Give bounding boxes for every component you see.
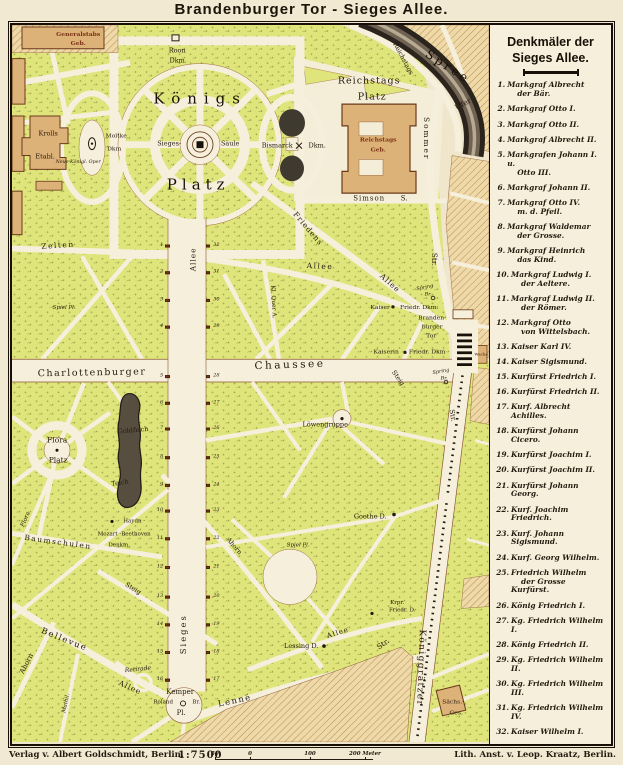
map-label: Lenné [218, 694, 253, 709]
monument-marker [206, 325, 211, 328]
monument-number: 27 [213, 401, 219, 406]
map-label: S. [401, 196, 408, 203]
monument-entry: 2.Markgraf Otto I. [496, 105, 606, 114]
monument-number: 21 [213, 565, 219, 570]
monument-entry: 28.König Friedrich II. [496, 641, 606, 650]
monument-number: 7 [160, 426, 163, 431]
map-label: Neue Königl. Oper [56, 161, 101, 166]
map-label: Sieges [180, 614, 189, 654]
map-label: Chaussee [255, 359, 326, 372]
monument-entry: 20.Kurfürst Joachim II. [496, 466, 606, 475]
monument-number: 14 [157, 622, 163, 627]
monument-marker [206, 427, 211, 430]
map-label: Br. [192, 701, 200, 706]
monument-marker [206, 402, 211, 405]
map-label: Allee [379, 273, 402, 294]
monument-number: 16 [157, 677, 163, 682]
map-label: Dkm. [169, 58, 186, 64]
monument-marker [206, 244, 211, 247]
map-label: Reichstags [360, 138, 397, 144]
map-region: GeneralstabsGeb.RoonDkm.KönigsPlatzKroll… [12, 25, 489, 742]
monument-entry: 29.Kg. Friedrich Wilhelm II. [496, 656, 606, 674]
monument-marker [206, 484, 211, 487]
monument-entry: 17.Kurf. Albrecht Achilles. [496, 403, 606, 421]
map-frame: GeneralstabsGeb.RoonDkm.KönigsPlatzKroll… [8, 21, 615, 748]
map-label: Branden- [418, 316, 446, 322]
monument-entry: 24.Kurf. Georg Wilhelm. [496, 554, 606, 563]
monument-number: 10 [157, 508, 163, 513]
legend-list: 1.Markgraf Albrechtder Bär.2.Markgraf Ot… [494, 78, 607, 738]
monument-marker [206, 623, 211, 626]
monument-number: 1 [160, 243, 163, 248]
map-label: Simson [353, 196, 385, 203]
monument-entry: 4.Markgraf Albrecht II. [496, 136, 606, 145]
map-label: Ufer [454, 97, 473, 112]
map-label: Löwengruppe [302, 422, 347, 428]
monument-number: 11 [157, 536, 163, 541]
map-label: Wache [475, 353, 488, 357]
monument-marker [165, 456, 170, 459]
monument-entry: 5.Markgrafen Johann I. u.Otto III. [496, 151, 606, 178]
map-label: Zelten [41, 241, 75, 251]
monument-marker [206, 299, 211, 302]
publisher-credit: Verlag v. Albert Goldschmidt, Berlin. [9, 750, 184, 760]
monument-entry: 8.Markgraf Waldemarder Grosse. [496, 223, 606, 241]
monument-entry: 19.Kurfürst Joachim I. [496, 451, 606, 460]
legend-panel: Denkmäler der Sieges Allee. 1.Markgraf A… [489, 25, 611, 744]
map-label: Ges. [450, 711, 463, 717]
map-label: Etabl. [35, 154, 55, 160]
monument-entry: 6.Markgraf Johann II. [496, 184, 606, 193]
monument-entry: 13.Kaiser Karl IV. [496, 343, 606, 352]
monument-marker [206, 456, 211, 459]
monument-entry: 15.Kurfürst Friedrich I. [496, 373, 606, 382]
monument-entry: 27.Kg. Friedrich Wilhelm I. [496, 617, 606, 635]
map-label: Spiel Pl. [287, 544, 310, 549]
map-label: Haydn - [123, 520, 145, 525]
monument-number: 13 [157, 594, 163, 599]
map-label: Krolls [39, 131, 58, 137]
map-label: Roon [169, 48, 186, 54]
map-label: Baumschulen [24, 534, 92, 551]
monument-marker [165, 325, 170, 328]
map-label: Roland [153, 701, 173, 706]
map-label: Spree [424, 48, 473, 85]
legend-title-line1: Denkmäler der [494, 35, 607, 51]
monument-marker [206, 566, 211, 569]
monument-entry: 3.Markgraf Otto II. [496, 121, 606, 130]
monument-marker [165, 651, 170, 654]
monument-entry: 11.Markgraf Ludwig II.der Römer. [496, 295, 606, 313]
map-label: Säule [221, 141, 239, 147]
map-label: Goldfisch [118, 426, 149, 435]
monument-marker [206, 537, 211, 540]
map-label: Tor [426, 334, 436, 340]
monument-entry: 21.Kurfürst Johann Georg. [496, 482, 606, 500]
monument-number: 15 [157, 650, 163, 655]
monument-number: 32 [213, 243, 219, 248]
map-label: Kemper [166, 689, 194, 696]
monument-number: 24 [213, 483, 219, 488]
monument-marker [165, 402, 170, 405]
map-label: Geb. [71, 41, 86, 47]
map-label: Reichstags [392, 42, 415, 76]
map-label: Dkm. [308, 143, 325, 149]
monument-entry: 26.König Friedrich I. [496, 602, 606, 611]
monument-entry: 16.Kurfürst Friedrich II. [496, 388, 606, 397]
monument-marker [165, 375, 170, 378]
monument-number: 2 [160, 270, 163, 275]
monument-number: 6 [160, 401, 163, 406]
monument-marker [206, 595, 211, 598]
legend-divider [525, 71, 577, 74]
map-label: Sommer [422, 117, 430, 160]
page-title: Brandenburger Tor - Sieges Allee. [0, 1, 623, 18]
map-label: Friedens [292, 211, 324, 247]
legend-title-line2: Sieges Allee. [494, 51, 607, 67]
map-label: Dkm [107, 147, 121, 153]
scale-tick-label: 50 [211, 751, 219, 757]
map-label: Bellevue [40, 627, 89, 653]
monument-number: 31 [213, 270, 219, 275]
map-label: Str. [376, 637, 391, 651]
map-label: Flora [47, 437, 67, 444]
monument-number: 22 [213, 536, 219, 541]
scale-tick-label: 100 [304, 751, 315, 757]
monument-marker [206, 651, 211, 654]
map-label: Moltke [106, 134, 127, 140]
monument-number: 23 [213, 508, 219, 513]
monument-number: 25 [213, 455, 219, 460]
monument-entry: 1.Markgraf Albrechtder Bär. [496, 81, 606, 99]
monument-entry: 23.Kurf. Johann Sigismund. [496, 530, 606, 548]
monument-marker [165, 566, 170, 569]
map-label: Teich [111, 479, 129, 488]
monument-number: 20 [213, 594, 219, 599]
monument-marker [165, 427, 170, 430]
monument-entry: 31.Kg. Friedrich Wilhelm IV. [496, 704, 606, 722]
map-label: Flora [20, 511, 32, 528]
map-label: Br. [441, 377, 448, 382]
monument-entry: 32.Kaiser Wilhelm I. [496, 728, 606, 737]
map-label: Allee [118, 679, 143, 696]
scale-tick-label: 200 Meter [349, 751, 381, 757]
map-label: Sächs.- [442, 700, 464, 706]
monument-marker [165, 271, 170, 274]
map-label: Allee [307, 262, 334, 271]
monument-number: 5 [160, 374, 163, 379]
monument-number: 9 [160, 483, 163, 488]
map-label: Bismarck [262, 143, 293, 149]
map-label: Str. [448, 409, 457, 422]
map-label: Ahorn [225, 537, 243, 556]
map-label: Friedr. Dkm. [400, 305, 438, 311]
monument-number: 19 [213, 622, 219, 627]
monument-entry: 18.Kurfürst Johann Cicero. [496, 427, 606, 445]
map-label: Goethe D. [354, 514, 387, 520]
monument-number: 30 [213, 298, 219, 303]
map-label: Sieges- [157, 141, 181, 147]
monument-entry: 25.Friedrich Wilhelmder Grosse Kurfürst. [496, 569, 606, 596]
map-label: Steig [391, 369, 406, 387]
map-label: Kaiserin [374, 350, 399, 356]
monument-entry: 10.Markgraf Ludwig I.der Aeltere. [496, 271, 606, 289]
map-label: Allee [326, 627, 350, 641]
monument-marker [206, 509, 211, 512]
monument-marker [165, 678, 170, 681]
monument-entry: 30.Kg. Friedrich Wilhelm III. [496, 680, 606, 698]
map-label: Retirade [125, 666, 152, 675]
map-label: Reichstags [338, 77, 401, 86]
map-label: Br. [425, 293, 432, 298]
monument-entry: 12.Markgraf Ottovon Wittelsbach. [496, 319, 606, 337]
map-label: Platz [358, 93, 387, 102]
monument-marker [165, 537, 170, 540]
map-label: Königgrätzer [414, 629, 426, 706]
monument-marker [165, 299, 170, 302]
map-label: Charlottenburger [38, 368, 147, 379]
map-label: Königs [153, 92, 247, 107]
footer: Verlag v. Albert Goldschmidt, Berlin. 1:… [0, 748, 623, 765]
monument-entry: 14.Kaiser Sigismund. [496, 358, 606, 367]
monument-marker [206, 375, 211, 378]
monument-marker [206, 271, 211, 274]
scale-bar: 500100200 Meter [215, 751, 373, 761]
monument-number: 12 [157, 565, 163, 570]
monument-number: 17 [213, 677, 219, 682]
lithographer-credit: Lith. Anst. v. Leop. Kraatz, Berlin. [454, 750, 616, 760]
monument-marker [206, 678, 211, 681]
map-label: Kl. Quer A. [269, 285, 277, 318]
monument-number: 8 [160, 455, 163, 460]
map-label: Friedr. D. [389, 609, 415, 614]
monument-entry: 9.Markgraf Heinrichdas Kind. [496, 247, 606, 265]
map-label: Steig [124, 582, 142, 596]
monument-marker [165, 595, 170, 598]
monument-marker [165, 484, 170, 487]
map-label: Krpr. [390, 601, 404, 606]
monument-marker [165, 509, 170, 512]
map-label: Geb. [371, 148, 386, 154]
map-label: Mozart -Beethoven [98, 533, 151, 538]
page: Brandenburger Tor - Sieges Allee. [0, 0, 623, 765]
map-label: Spiel Pl. [53, 306, 76, 311]
map-label: Allee [189, 248, 197, 272]
monument-marker [165, 244, 170, 247]
monument-number: 29 [213, 324, 219, 329]
map-label: burger [422, 325, 443, 331]
map-label: Ahorn [19, 653, 35, 675]
map-label: Str. [430, 253, 438, 266]
monument-entry: 7.Markgraf Otto IV.m. d. Pfeil. [496, 199, 606, 217]
monument-number: 26 [213, 426, 219, 431]
map-labels: GeneralstabsGeb.RoonDkm.KönigsPlatzKroll… [12, 25, 489, 742]
map-label: Generalstabs [56, 32, 100, 38]
monument-entry: 22.Kurf. Joachim Friedrich. [496, 506, 606, 524]
map-label: Platz [167, 178, 230, 193]
map-label: Kaiser [370, 305, 389, 311]
map-label: Platz [49, 457, 68, 464]
map-label: Denkm. [108, 544, 130, 549]
map-label: Friedr. Dkm [409, 350, 446, 356]
map-label: Pl. [177, 710, 186, 717]
monument-number: 28 [213, 374, 219, 379]
map-label: Mathil. [62, 693, 72, 713]
monument-number: 18 [213, 650, 219, 655]
monument-number: 4 [160, 324, 163, 329]
monument-number: 3 [160, 298, 163, 303]
map-label: Lessing D. [284, 643, 318, 649]
monument-marker [165, 623, 170, 626]
scale-tick-label: 0 [248, 751, 252, 757]
